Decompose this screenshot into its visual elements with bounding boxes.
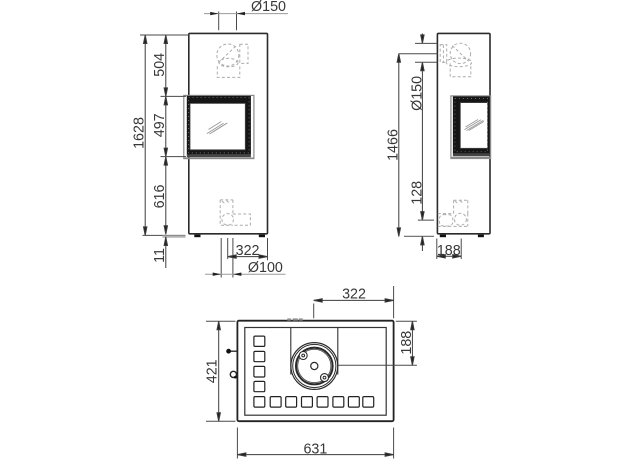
svg-text:631: 631 xyxy=(303,442,327,458)
svg-text:322: 322 xyxy=(342,287,366,303)
svg-text:Ø150: Ø150 xyxy=(409,76,425,111)
svg-text:Ø150: Ø150 xyxy=(251,0,286,15)
svg-text:188: 188 xyxy=(399,331,415,355)
svg-text:421: 421 xyxy=(205,359,221,383)
svg-text:1628: 1628 xyxy=(131,117,147,149)
svg-text:497: 497 xyxy=(152,113,168,137)
svg-text:128: 128 xyxy=(409,181,425,205)
svg-text:616: 616 xyxy=(152,185,168,209)
svg-text:11: 11 xyxy=(152,248,168,263)
svg-text:1466: 1466 xyxy=(386,129,402,161)
svg-text:504: 504 xyxy=(152,53,168,77)
svg-text:188: 188 xyxy=(437,243,461,259)
svg-text:322: 322 xyxy=(236,243,260,259)
svg-text:Ø100: Ø100 xyxy=(248,260,283,276)
